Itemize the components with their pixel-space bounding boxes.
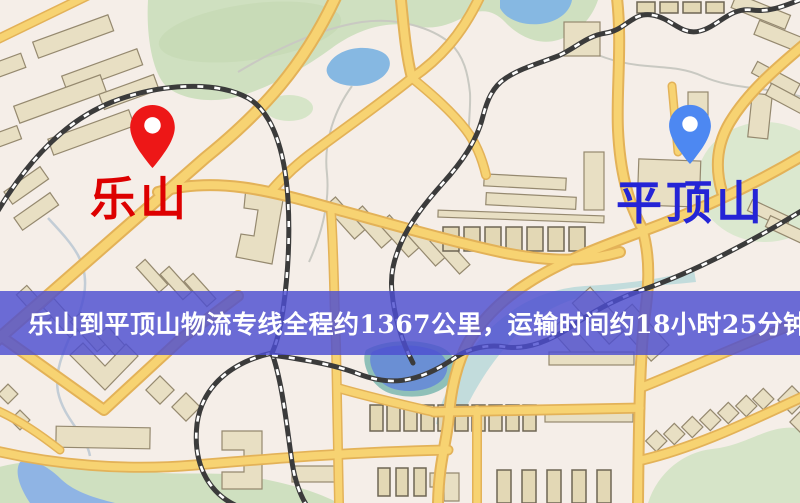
destination-pin-shape [669,105,711,164]
origin-pin-hole [144,117,160,133]
origin-label: 乐山 [90,176,190,222]
destination-pin-hole [682,116,697,131]
destination-label: 平顶山 [616,180,766,226]
route-info-text: 乐山到平顶山物流专线全程约1367公里，运输时间约18小时25分钟. [28,305,800,341]
origin-pin-shape [130,105,175,168]
origin-pin-icon[interactable] [128,104,177,168]
map-viewport: 乐山到平顶山物流专线全程约1367公里，运输时间约18小时25分钟. 乐山 平顶… [0,0,800,503]
destination-pin-icon[interactable] [667,104,713,164]
route-info-banner: 乐山到平顶山物流专线全程约1367公里，运输时间约18小时25分钟. [0,291,800,355]
map-artwork [0,0,800,503]
